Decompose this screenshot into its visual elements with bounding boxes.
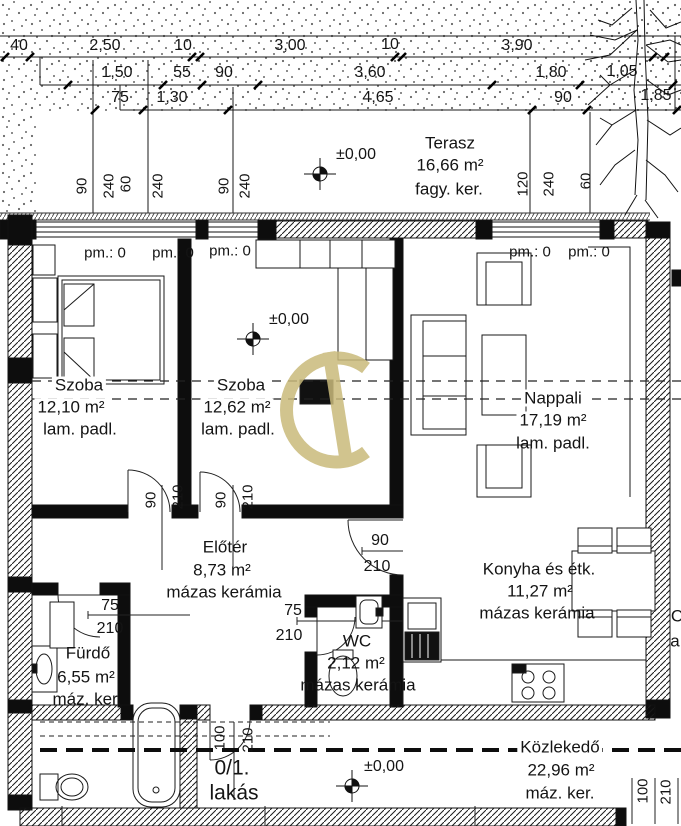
unit-label: 0/1. bbox=[214, 758, 249, 779]
room-floor: lam. padl. bbox=[201, 421, 275, 438]
parapet-label: pm.: 0 bbox=[209, 244, 251, 259]
unit-label: lakás bbox=[209, 783, 258, 804]
room-floor: máz. ker. bbox=[53, 691, 122, 708]
wardrobe bbox=[256, 240, 395, 268]
door-dim: 210 bbox=[97, 621, 124, 637]
dim-label: 2,50 bbox=[89, 38, 120, 54]
room-area: 12,62 m² bbox=[200, 399, 273, 416]
window-dim-label: 60 bbox=[119, 176, 134, 193]
door-dim: 90 bbox=[144, 492, 159, 509]
dim-label: 3,90 bbox=[501, 38, 532, 54]
dim-label: 10 bbox=[381, 37, 399, 53]
door-dim: 210 bbox=[276, 628, 303, 644]
level-label: ±0,00 bbox=[269, 312, 309, 328]
dim-label: 10 bbox=[174, 38, 192, 54]
wc-basin bbox=[356, 596, 383, 628]
level-label: ±0,00 bbox=[336, 147, 376, 163]
window-dim-label: 90 bbox=[75, 178, 90, 195]
window-mid bbox=[208, 222, 258, 237]
sofa bbox=[411, 315, 466, 435]
dim-label: 1,05 bbox=[606, 64, 637, 80]
room-name: Előtér bbox=[203, 539, 247, 556]
room-floor: lam. padl. bbox=[516, 435, 590, 452]
armchair bbox=[477, 445, 531, 497]
dim-label: 4,65 bbox=[362, 90, 393, 106]
dim-label: 1,30 bbox=[156, 90, 187, 106]
room-area: 22,96 m² bbox=[527, 762, 594, 779]
kitchen-sink bbox=[403, 598, 441, 662]
chair bbox=[617, 528, 651, 553]
terrace-edge bbox=[0, 213, 650, 220]
room-floor: fagy. ker. bbox=[415, 181, 483, 198]
window-dim-label: 60 bbox=[579, 173, 594, 190]
dim-label: 3,00 bbox=[274, 38, 305, 54]
toilet bbox=[40, 774, 88, 800]
dim-label: 3,60 bbox=[354, 65, 385, 81]
window-dim-label: 240 bbox=[102, 173, 117, 198]
door-dim: 210 bbox=[659, 779, 674, 804]
door-dim: 210 bbox=[364, 559, 391, 575]
room-name: Szoba bbox=[214, 377, 268, 394]
door-dim: 100 bbox=[636, 778, 651, 803]
window-dim-label: 90 bbox=[217, 178, 232, 195]
room-name: Konyha és étk. bbox=[483, 561, 595, 578]
dim-label: 40 bbox=[10, 38, 28, 54]
door-dim: 210 bbox=[241, 484, 256, 509]
parapet-label: pm.: 0 bbox=[84, 246, 126, 261]
door-dim: 210 bbox=[241, 727, 256, 752]
floor-plan: 40 2,50 10 3,00 10 3,90 1,50 55 90 3,60 … bbox=[0, 0, 681, 826]
room-floor: mázas kerámia bbox=[300, 677, 415, 694]
room-name: Szoba bbox=[52, 377, 106, 394]
room-floor: mázas kerámia bbox=[479, 605, 594, 622]
room-area: 8,73 m² bbox=[193, 562, 251, 579]
room-name: WC bbox=[343, 633, 371, 650]
dim-label: 1,80 bbox=[535, 65, 566, 81]
radiator bbox=[50, 602, 74, 648]
bath-basin bbox=[32, 646, 57, 692]
room-area: 16,66 m² bbox=[416, 157, 483, 174]
dim-label: 1,85 bbox=[640, 88, 671, 104]
dresser bbox=[33, 245, 55, 275]
door-dim: 90 bbox=[214, 492, 229, 509]
room-floor: máz. ker. bbox=[526, 785, 595, 802]
dim-label: 75 bbox=[111, 90, 129, 106]
level-marker bbox=[304, 158, 336, 190]
edge-fragment: a bbox=[670, 633, 679, 650]
door-dim: 90 bbox=[371, 533, 389, 549]
room-area: 2,12 m² bbox=[327, 655, 385, 672]
door-dim: 75 bbox=[101, 598, 119, 614]
wardrobe bbox=[338, 268, 393, 360]
room-name: Fürdő bbox=[66, 645, 110, 662]
bathtub bbox=[133, 703, 180, 807]
room-area: 11,27 m² bbox=[507, 583, 573, 600]
nightstand bbox=[33, 334, 57, 378]
room-name: Nappali bbox=[521, 390, 585, 407]
window-dim-label: 240 bbox=[151, 173, 166, 198]
window-dim-label: 240 bbox=[542, 171, 557, 196]
parapet-label: pm.: 0 bbox=[152, 246, 194, 261]
level-label: ±0,00 bbox=[364, 759, 404, 775]
parapet-label: pm.: 0 bbox=[509, 245, 551, 260]
armchair bbox=[477, 253, 531, 305]
room-name: Közlekedő bbox=[517, 739, 602, 756]
window-dim-label: 240 bbox=[238, 173, 253, 198]
room-floor: lam. padl. bbox=[43, 421, 117, 438]
window-right bbox=[492, 222, 600, 237]
watermark-logo bbox=[287, 352, 366, 466]
dim-label: 1,50 bbox=[101, 65, 132, 81]
room-area: 6,55 m² bbox=[57, 669, 115, 686]
edge-fragment: C bbox=[671, 608, 681, 625]
parapet-label: pm.: 0 bbox=[568, 245, 610, 260]
stove bbox=[512, 664, 564, 702]
chair bbox=[617, 610, 651, 637]
room-floor: mázas kerámia bbox=[166, 584, 281, 601]
door-dim: 75 bbox=[284, 603, 302, 619]
dim-label: 55 bbox=[173, 65, 191, 81]
level-marker bbox=[237, 323, 269, 355]
window-dim-label: 120 bbox=[516, 171, 531, 196]
room-area: 17,19 m² bbox=[516, 412, 589, 429]
room-area: 12,10 m² bbox=[34, 399, 107, 416]
dim-label: 90 bbox=[554, 90, 572, 106]
door-dim: 100 bbox=[213, 725, 228, 750]
window-left bbox=[36, 222, 196, 237]
door-dim: 210 bbox=[171, 484, 186, 509]
bed bbox=[58, 276, 164, 384]
coffee-table bbox=[482, 335, 526, 415]
chair bbox=[578, 528, 612, 553]
nightstand bbox=[33, 278, 57, 322]
counter-ledge bbox=[588, 247, 630, 497]
room-name: Terasz bbox=[425, 135, 475, 152]
dim-label: 90 bbox=[215, 65, 233, 81]
